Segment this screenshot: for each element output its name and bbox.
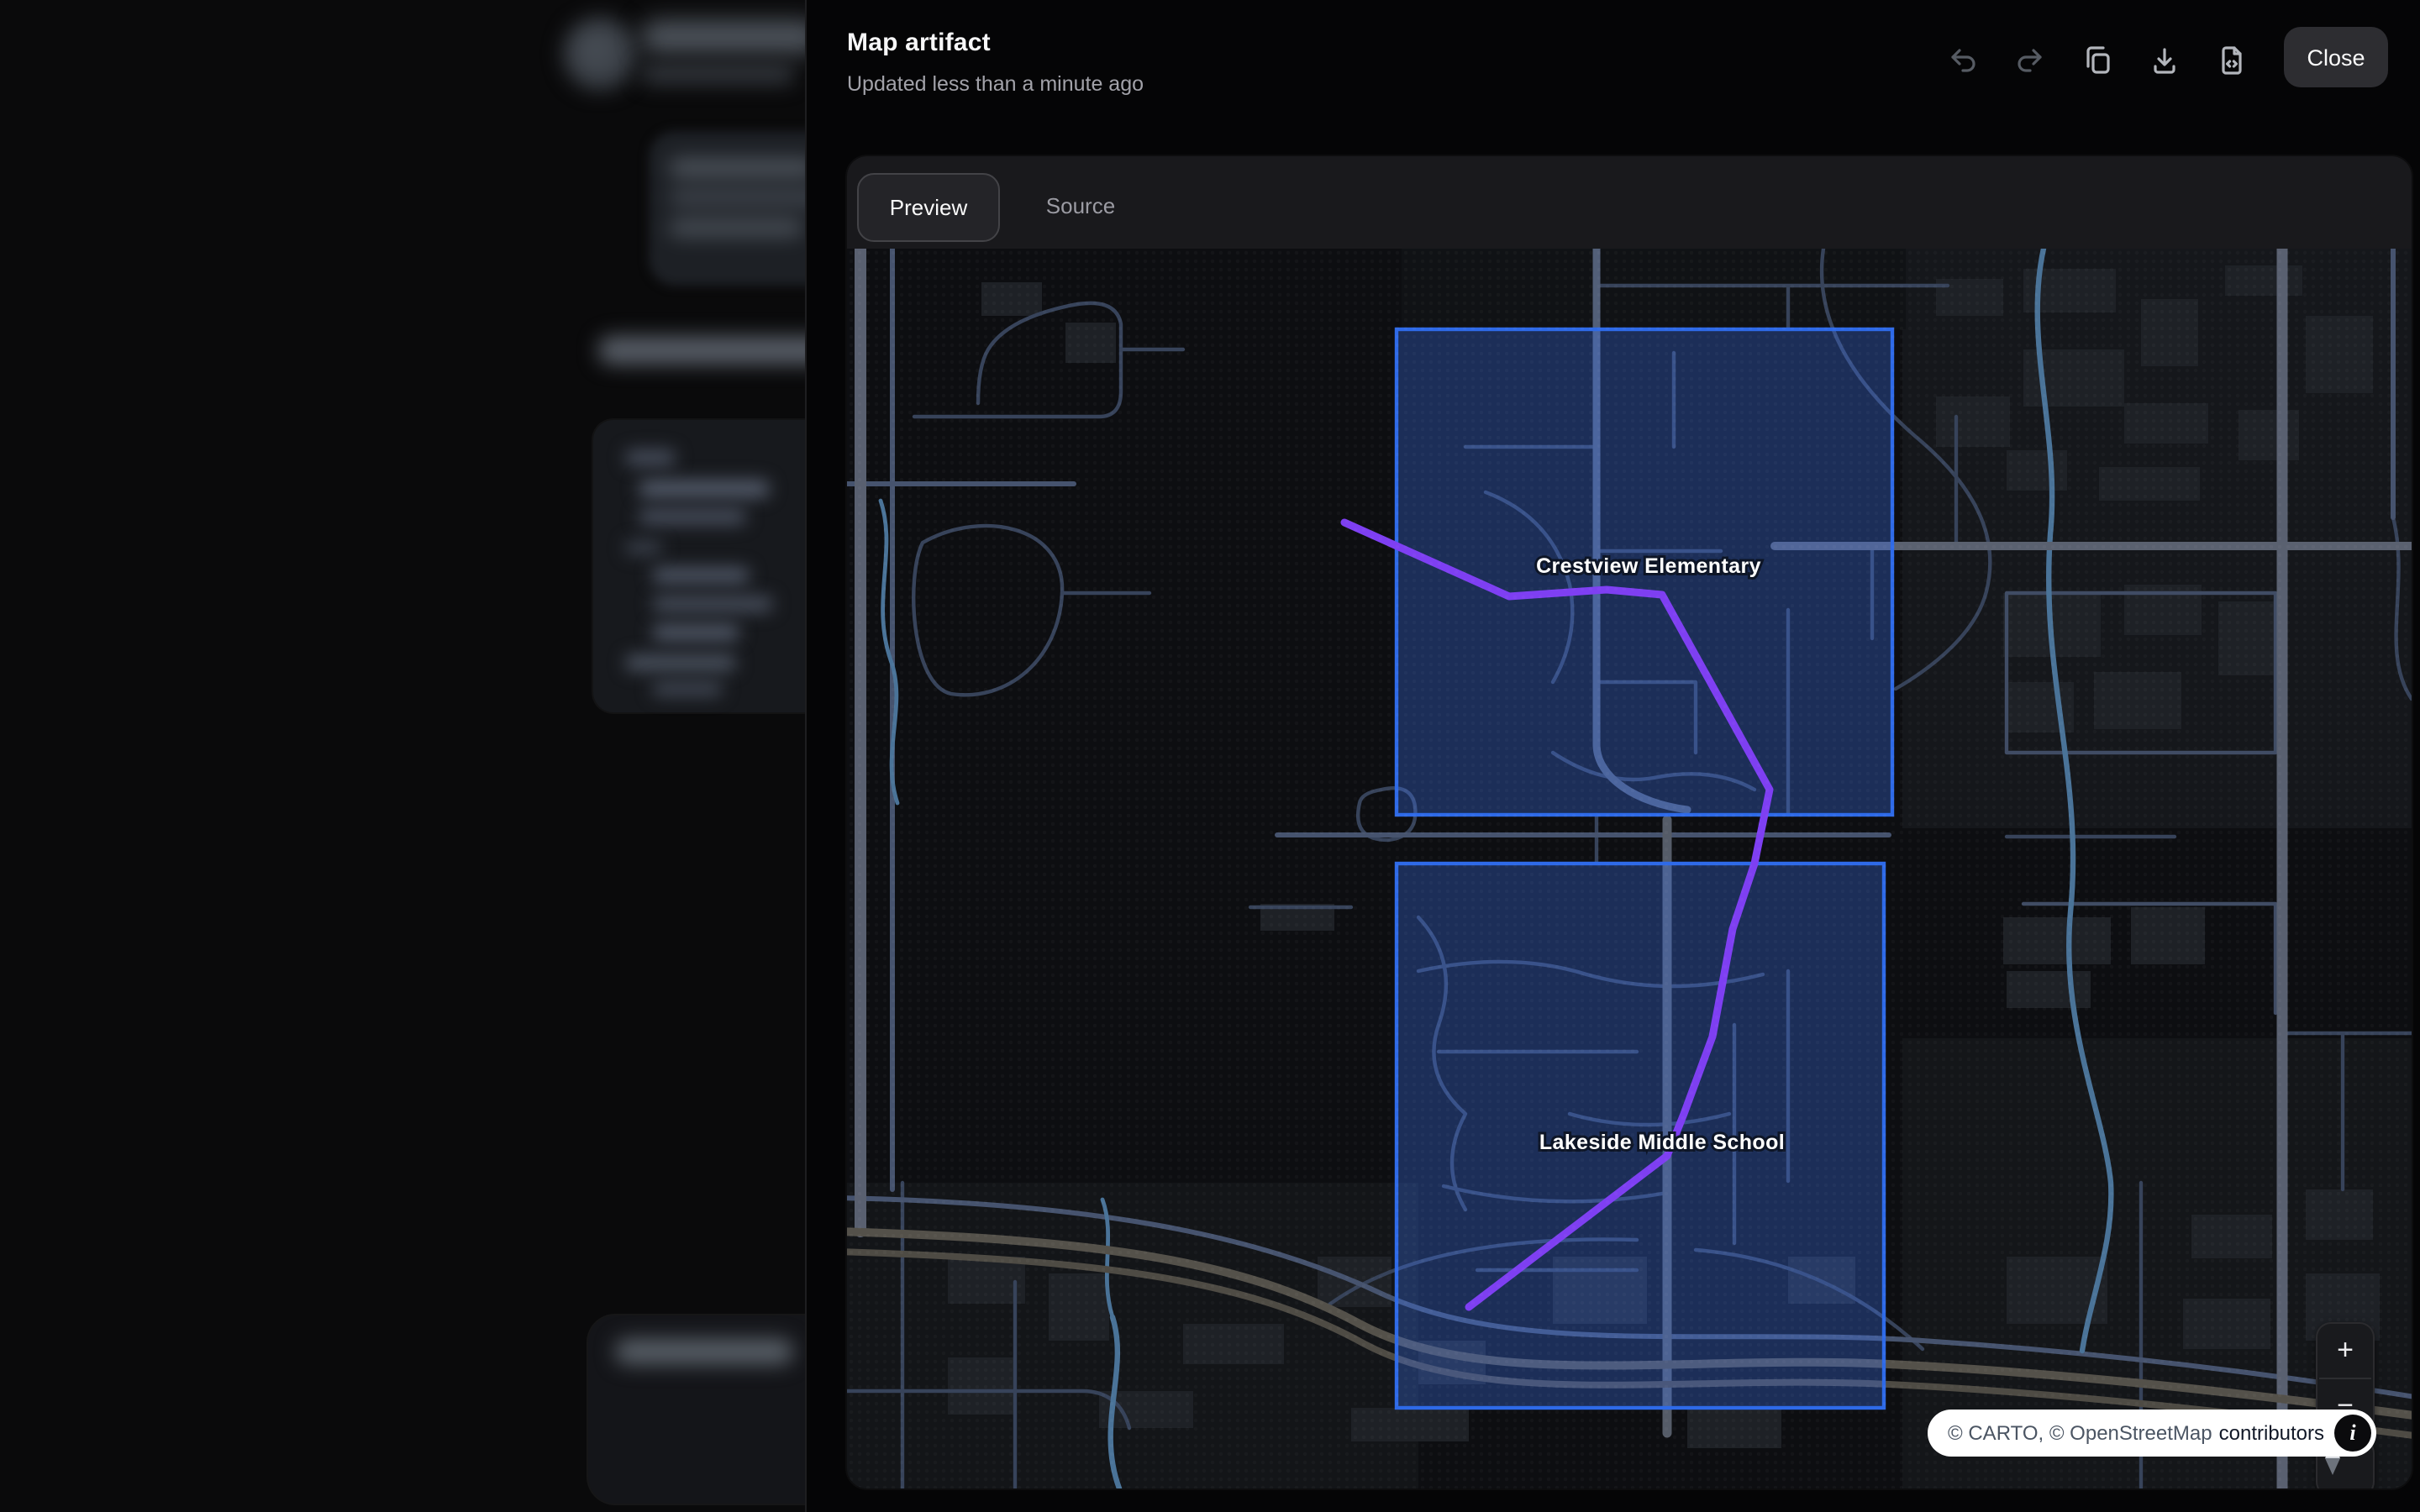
blurred-message-bubble — [649, 131, 805, 286]
conversation-sidebar — [0, 0, 805, 1512]
blurred-code-card — [593, 420, 805, 712]
blurred-chat-input — [588, 1315, 805, 1504]
close-button[interactable]: Close — [2284, 27, 2388, 87]
artifact-updated-status: Updated less than a minute ago — [847, 72, 1144, 96]
redo-icon — [2013, 44, 2047, 77]
info-icon[interactable]: i — [2334, 1415, 2371, 1452]
undo-icon — [1946, 44, 1980, 77]
zoom-in-button[interactable]: + — [2317, 1324, 2373, 1378]
app-window: Map artifact Updated less than a minute … — [0, 0, 2420, 1512]
download-button[interactable] — [2146, 42, 2183, 79]
tab-preview[interactable]: Preview — [857, 173, 1000, 242]
tab-source[interactable]: Source — [1020, 173, 1141, 239]
avatar — [563, 17, 637, 91]
export-file-button[interactable] — [2213, 42, 2250, 79]
attribution-contributors[interactable]: contributors — [2219, 1421, 2324, 1445]
blurred-user-name — [640, 20, 805, 54]
preview-map[interactable]: Crestview Elementary Lakeside Middle Sch… — [847, 249, 2412, 1488]
map-attribution: © CARTO, © OpenStreetMap contributors i — [1928, 1410, 2376, 1457]
redo-button[interactable] — [2012, 42, 2049, 79]
copy-button[interactable] — [2079, 42, 2116, 79]
artifact-title: Map artifact — [847, 29, 991, 57]
lakeside-map-label: Lakeside Middle School — [1539, 1131, 1785, 1154]
artifact-pane: Map artifact Updated less than a minute … — [805, 0, 2420, 1512]
copy-icon — [2081, 44, 2114, 77]
artifact-panel: Preview Source — [847, 156, 2412, 1488]
tab-bar: Preview Source — [847, 156, 2412, 249]
attribution-sources[interactable]: © CARTO, © OpenStreetMap — [1948, 1421, 2212, 1445]
selection-polygons — [1397, 329, 1892, 1408]
map-canvas: Crestview Elementary Lakeside Middle Sch… — [847, 249, 2412, 1488]
download-icon — [2148, 44, 2181, 77]
file-code-icon — [2215, 44, 2249, 77]
crestview-map-label: Crestview Elementary — [1536, 554, 1761, 578]
blurred-assistant-text — [598, 336, 805, 365]
blurred-user-meta — [640, 64, 795, 84]
undo-button[interactable] — [1944, 42, 1981, 79]
